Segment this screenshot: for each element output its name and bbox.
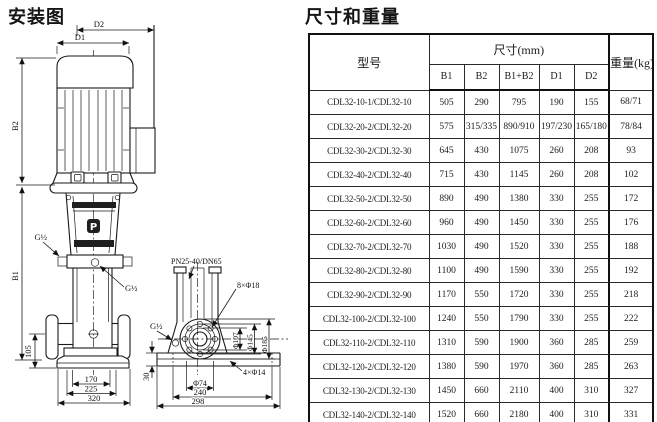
table-row: CDL32-30-2/CDL32-30645430107526020893 bbox=[309, 139, 653, 163]
flange-bolt-holes-label: 8×Φ18 bbox=[237, 281, 259, 290]
weight-cell: 263 bbox=[609, 355, 653, 379]
model-cell: CDL32-60-2/CDL32-60 bbox=[309, 211, 429, 235]
b2-cell: 590 bbox=[464, 331, 499, 355]
b1-cell: 1520 bbox=[429, 403, 464, 422]
model-cell: CDL32-10-1/CDL32-10 bbox=[309, 90, 429, 115]
dim-label-320: 320 bbox=[88, 393, 101, 403]
weight-cell: 102 bbox=[609, 163, 653, 187]
d2-cell: 255 bbox=[574, 307, 609, 331]
dim-label-225: 225 bbox=[85, 384, 98, 394]
size-weight-table: 型号 尺寸(mm) 重量(kg) B1 B2 B1+B2 D1 D2 CDL32… bbox=[308, 33, 654, 422]
callout-g-half-head: G½ bbox=[100, 266, 138, 293]
weight-cell: 68/71 bbox=[609, 90, 653, 115]
model-cell: CDL32-120-2/CDL32-120 bbox=[309, 355, 429, 379]
dim-label-30: 30 bbox=[141, 373, 151, 382]
d1-cell: 360 bbox=[539, 331, 574, 355]
dim-label-170: 170 bbox=[85, 374, 98, 384]
size-weight-table-body: CDL32-10-1/CDL32-1050529079519015568/71C… bbox=[309, 90, 653, 422]
col-group-dimensions: 尺寸(mm) bbox=[429, 34, 609, 64]
b1-plus-b2-cell: 1075 bbox=[499, 139, 539, 163]
d2-cell: 255 bbox=[574, 235, 609, 259]
motor bbox=[57, 56, 133, 173]
table-row: CDL32-20-2/CDL32-20575315/335890/910197/… bbox=[309, 115, 653, 139]
b1-cell: 575 bbox=[429, 115, 464, 139]
d2-cell: 255 bbox=[574, 211, 609, 235]
table-row: CDL32-60-2/CDL32-609604901450330255176 bbox=[309, 211, 653, 235]
d1-cell: 260 bbox=[539, 139, 574, 163]
b1-plus-b2-cell: 1900 bbox=[499, 331, 539, 355]
d2-cell: 285 bbox=[574, 331, 609, 355]
d2-cell: 165/180 bbox=[574, 115, 609, 139]
table-row: CDL32-130-2/CDL32-1301450660211040031032… bbox=[309, 379, 653, 403]
dim-label-b1: B1 bbox=[10, 271, 20, 281]
model-cell: CDL32-30-2/CDL32-30 bbox=[309, 139, 429, 163]
d1-cell: 330 bbox=[539, 259, 574, 283]
b2-cell: 490 bbox=[464, 259, 499, 283]
b1-plus-b2-cell: 2180 bbox=[499, 403, 539, 422]
b1-cell: 960 bbox=[429, 211, 464, 235]
callout-g-half-left: G½ bbox=[34, 232, 59, 256]
weight-cell: 259 bbox=[609, 331, 653, 355]
terminal-box bbox=[130, 128, 155, 173]
lantern-section: P bbox=[66, 193, 120, 255]
flange-spec-label: PN25-40/DN65 bbox=[171, 257, 222, 266]
table-row: CDL32-120-2/CDL32-1201380590197036028526… bbox=[309, 355, 653, 379]
d1-cell: 400 bbox=[539, 403, 574, 422]
dim-label-105: 105 bbox=[23, 345, 33, 358]
col-header-b1: B1 bbox=[429, 64, 464, 90]
model-cell: CDL32-70-2/CDL32-70 bbox=[309, 235, 429, 259]
brand-logo-letter: P bbox=[90, 222, 97, 233]
b2-cell: 550 bbox=[464, 283, 499, 307]
dim-30: 30 bbox=[141, 341, 157, 381]
pump-front-view: P bbox=[10, 20, 155, 406]
b1-cell: 715 bbox=[429, 163, 464, 187]
b1-cell: 645 bbox=[429, 139, 464, 163]
table-row: CDL32-100-2/CDL32-1001240550179033025522… bbox=[309, 307, 653, 331]
d1-cell: 330 bbox=[539, 187, 574, 211]
model-cell: CDL32-110-2/CDL32-110 bbox=[309, 331, 429, 355]
b2-cell: 430 bbox=[464, 139, 499, 163]
dimensions-weight-title: 尺寸和重量 bbox=[305, 3, 400, 29]
d2-cell: 208 bbox=[574, 163, 609, 187]
d1-cell: 197/230 bbox=[539, 115, 574, 139]
b1-plus-b2-cell: 1970 bbox=[499, 355, 539, 379]
model-cell: CDL32-130-2/CDL32-130 bbox=[309, 379, 429, 403]
b1-plus-b2-cell: 1145 bbox=[499, 163, 539, 187]
dia-bolt-circle-label: Φ145 bbox=[246, 334, 255, 351]
d1-cell: 330 bbox=[539, 283, 574, 307]
weight-cell: 192 bbox=[609, 259, 653, 283]
table-row: CDL32-70-2/CDL32-7010304901520330255188 bbox=[309, 235, 653, 259]
weight-cell: 188 bbox=[609, 235, 653, 259]
b1-cell: 1100 bbox=[429, 259, 464, 283]
b1-cell: 1450 bbox=[429, 379, 464, 403]
b1-plus-b2-cell: 2110 bbox=[499, 379, 539, 403]
model-cell: CDL32-80-2/CDL32-80 bbox=[309, 259, 429, 283]
g-half-head-label: G½ bbox=[125, 283, 138, 293]
b1-plus-b2-cell: 1720 bbox=[499, 283, 539, 307]
d2-cell: 310 bbox=[574, 403, 609, 422]
dim-b2: B2 bbox=[10, 58, 56, 185]
model-cell: CDL32-90-2/CDL32-90 bbox=[309, 283, 429, 307]
table-row: CDL32-110-2/CDL32-1101310590190036028525… bbox=[309, 331, 653, 355]
b2-cell: 490 bbox=[464, 187, 499, 211]
dia-inner-label: Φ107 bbox=[231, 332, 240, 349]
weight-cell: 222 bbox=[609, 307, 653, 331]
dim-d2: D2 bbox=[77, 20, 154, 36]
d2-cell: 255 bbox=[574, 259, 609, 283]
d2-cell: 208 bbox=[574, 139, 609, 163]
weight-cell: 176 bbox=[609, 211, 653, 235]
b1-plus-b2-cell: 1590 bbox=[499, 259, 539, 283]
model-cell: CDL32-50-2/CDL32-50 bbox=[309, 187, 429, 211]
b1-cell: 1170 bbox=[429, 283, 464, 307]
b2-cell: 430 bbox=[464, 163, 499, 187]
b2-cell: 590 bbox=[464, 355, 499, 379]
dim-d1: D1 bbox=[57, 32, 129, 54]
callout-flange-bolt-holes: 8×Φ18 bbox=[212, 281, 259, 327]
table-row: CDL32-40-2/CDL32-407154301145260208102 bbox=[309, 163, 653, 187]
dim-label-298: 298 bbox=[192, 396, 205, 406]
dim-label-b2: B2 bbox=[10, 121, 20, 131]
b2-cell: 490 bbox=[464, 211, 499, 235]
b1-plus-b2-cell: 1380 bbox=[499, 187, 539, 211]
pump-column bbox=[73, 268, 112, 348]
g-half-side-label: G½ bbox=[150, 321, 163, 331]
b1-cell: 505 bbox=[429, 90, 464, 115]
d2-cell: 255 bbox=[574, 283, 609, 307]
d2-cell: 255 bbox=[574, 187, 609, 211]
d2-cell: 155 bbox=[574, 90, 609, 115]
b1-cell: 1030 bbox=[429, 235, 464, 259]
weight-cell: 331 bbox=[609, 403, 653, 422]
side-base-plate bbox=[157, 353, 280, 366]
d1-cell: 330 bbox=[539, 211, 574, 235]
model-cell: CDL32-20-2/CDL32-20 bbox=[309, 115, 429, 139]
col-header-b1-plus-b2: B1+B2 bbox=[499, 64, 539, 90]
weight-cell: 327 bbox=[609, 379, 653, 403]
b1-cell: 1310 bbox=[429, 331, 464, 355]
g-half-left-label: G½ bbox=[34, 232, 47, 242]
col-header-weight: 重量(kg) bbox=[609, 34, 653, 90]
d1-cell: 330 bbox=[539, 235, 574, 259]
d1-cell: 360 bbox=[539, 355, 574, 379]
model-cell: CDL32-140-2/CDL32-140 bbox=[309, 403, 429, 422]
weight-cell: 218 bbox=[609, 283, 653, 307]
weight-cell: 172 bbox=[609, 187, 653, 211]
base-bolt-holes-label: 4×Φ14 bbox=[243, 368, 265, 377]
model-cell: CDL32-40-2/CDL32-40 bbox=[309, 163, 429, 187]
table-row: CDL32-50-2/CDL32-508904901380330255172 bbox=[309, 187, 653, 211]
callout-g-half-side: G½ bbox=[150, 321, 179, 346]
b1-plus-b2-cell: 795 bbox=[499, 90, 539, 115]
b1-plus-b2-cell: 1450 bbox=[499, 211, 539, 235]
b2-cell: 660 bbox=[464, 403, 499, 422]
d1-cell: 190 bbox=[539, 90, 574, 115]
col-header-d2: D2 bbox=[574, 64, 609, 90]
dim-label-d1: D1 bbox=[75, 32, 85, 42]
d1-cell: 260 bbox=[539, 163, 574, 187]
b1-cell: 1380 bbox=[429, 355, 464, 379]
b2-cell: 315/335 bbox=[464, 115, 499, 139]
pump-side-view: PN25-40/DN65 8×Φ18 bbox=[141, 257, 288, 409]
callout-base-bolt-holes: 4×Φ14 bbox=[230, 361, 265, 377]
model-cell: CDL32-100-2/CDL32-100 bbox=[309, 307, 429, 331]
b1-plus-b2-cell: 1520 bbox=[499, 235, 539, 259]
installation-diagram: P bbox=[0, 20, 305, 422]
dim-label-d2: D2 bbox=[94, 20, 104, 29]
col-header-b2: B2 bbox=[464, 64, 499, 90]
b2-cell: 290 bbox=[464, 90, 499, 115]
weight-cell: 93 bbox=[609, 139, 653, 163]
pump-head bbox=[58, 255, 132, 268]
b1-cell: 1240 bbox=[429, 307, 464, 331]
table-row: CDL32-80-2/CDL32-8011004901590330255192 bbox=[309, 259, 653, 283]
table-row: CDL32-140-2/CDL32-1401520660218040031033… bbox=[309, 403, 653, 422]
b1-cell: 890 bbox=[429, 187, 464, 211]
col-header-model: 型号 bbox=[309, 34, 429, 90]
dia-outer-label: Φ185 bbox=[260, 336, 269, 353]
d2-cell: 285 bbox=[574, 355, 609, 379]
d1-cell: 330 bbox=[539, 307, 574, 331]
weight-cell: 78/84 bbox=[609, 115, 653, 139]
b2-cell: 550 bbox=[464, 307, 499, 331]
d1-cell: 400 bbox=[539, 379, 574, 403]
b1-plus-b2-cell: 890/910 bbox=[499, 115, 539, 139]
b2-cell: 490 bbox=[464, 235, 499, 259]
table-row: CDL32-10-1/CDL32-1050529079519015568/71 bbox=[309, 90, 653, 115]
b1-plus-b2-cell: 1790 bbox=[499, 307, 539, 331]
col-header-d1: D1 bbox=[539, 64, 574, 90]
table-row: CDL32-90-2/CDL32-9011705501720330255218 bbox=[309, 283, 653, 307]
catalog-page: 安装图 尺寸和重量 bbox=[0, 0, 657, 422]
b2-cell: 660 bbox=[464, 379, 499, 403]
d2-cell: 310 bbox=[574, 379, 609, 403]
